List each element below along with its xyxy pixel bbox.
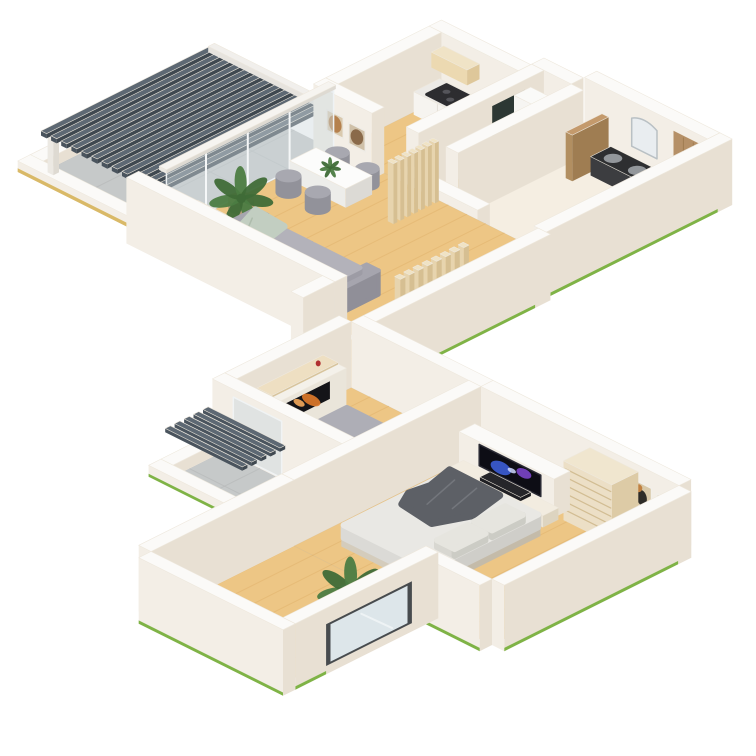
vanity-basin xyxy=(604,154,623,163)
dining-chair xyxy=(305,186,331,216)
cooktop-burner xyxy=(446,98,454,102)
apartment-model xyxy=(18,20,733,696)
shelf-red-decor xyxy=(316,360,321,366)
floor-plan-canvas xyxy=(0,0,756,756)
cooktop-burner xyxy=(443,90,451,94)
dining-chair xyxy=(275,169,301,199)
apartment-3d-floor-plan xyxy=(0,0,756,756)
